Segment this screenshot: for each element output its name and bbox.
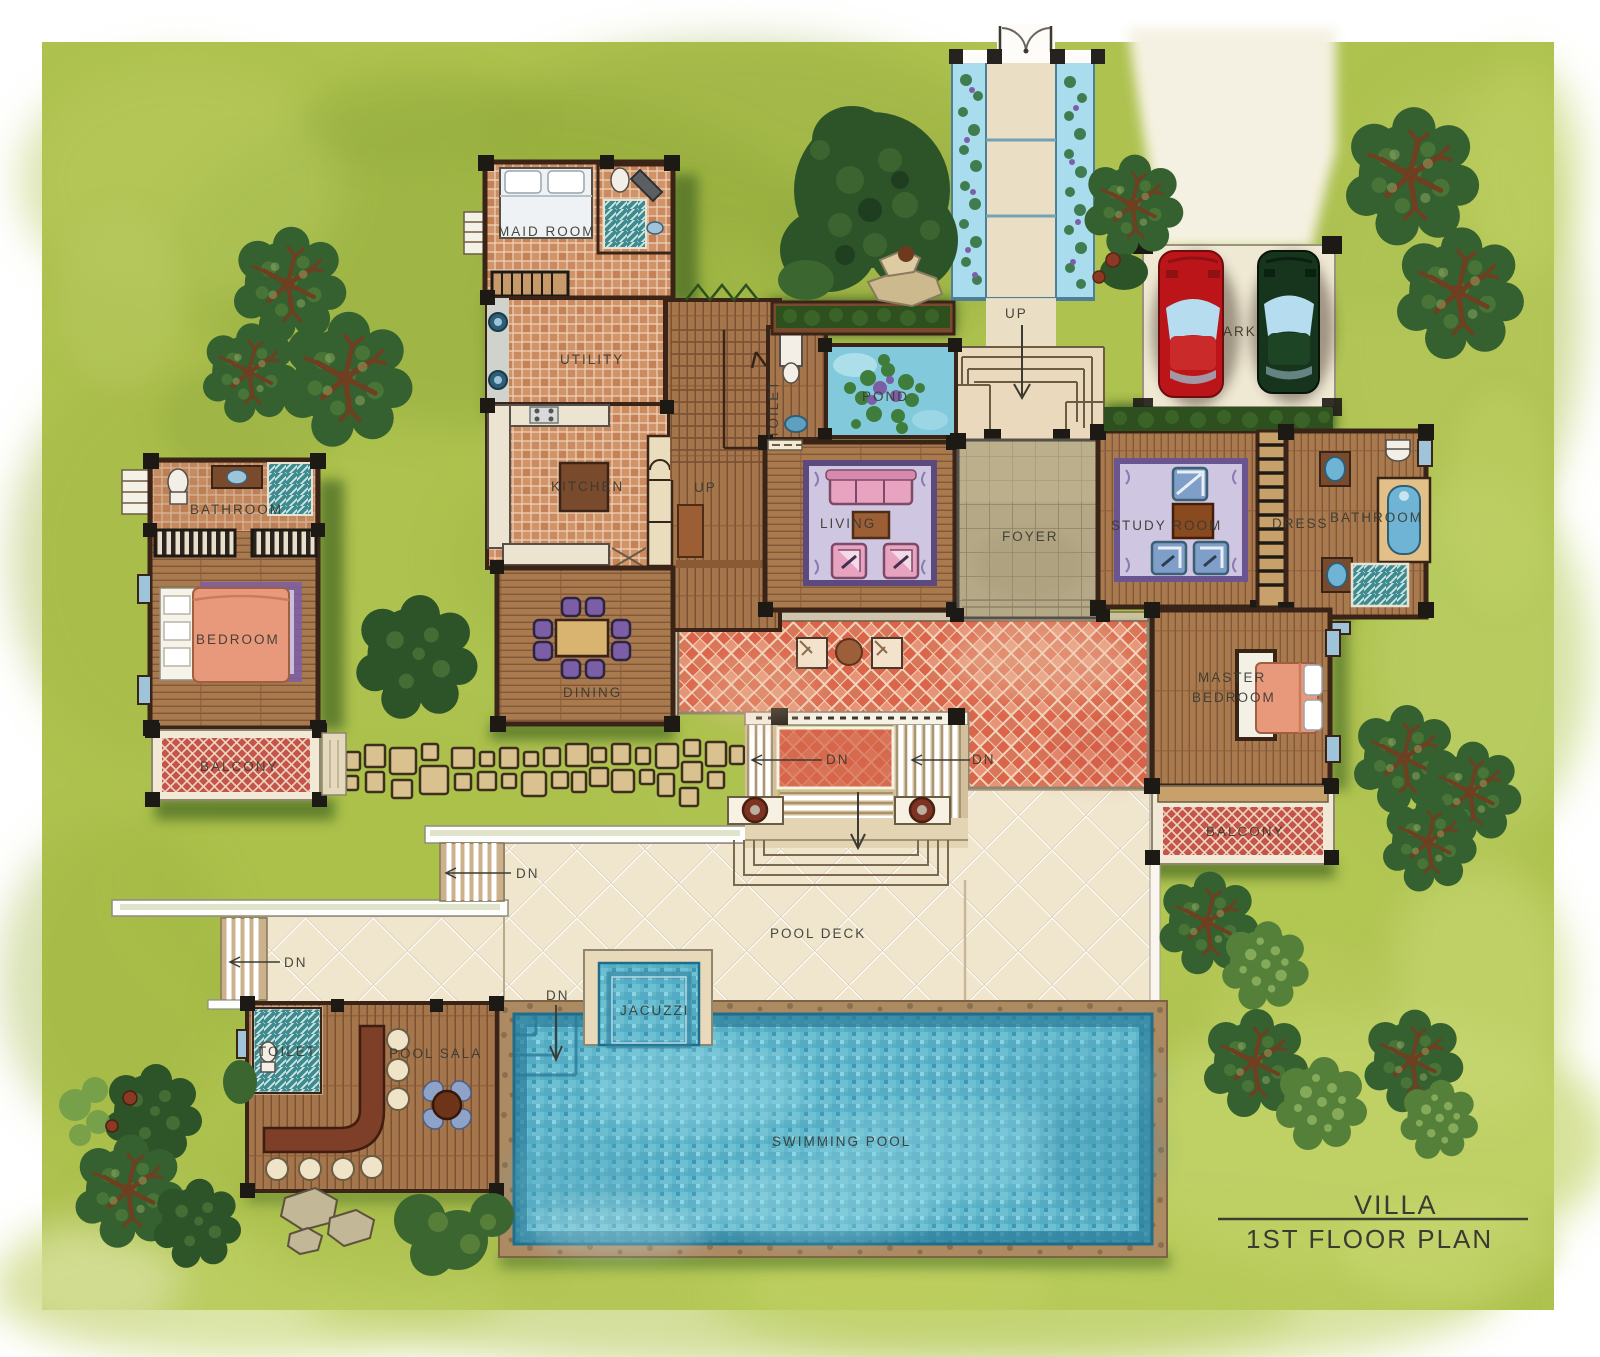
svg-text:JACUZZI: JACUZZI — [620, 1003, 690, 1018]
svg-text:SWIMMING POOL: SWIMMING POOL — [772, 1134, 911, 1149]
svg-text:UTILITY: UTILITY — [560, 352, 624, 367]
svg-text:1ST FLOOR PLAN: 1ST FLOOR PLAN — [1246, 1224, 1493, 1254]
svg-text:BEDROOM: BEDROOM — [1192, 690, 1276, 705]
svg-text:DN: DN — [516, 866, 540, 881]
svg-text:DINING: DINING — [563, 685, 622, 700]
svg-text:MASTER: MASTER — [1198, 670, 1266, 685]
svg-text:TOILET: TOILET — [258, 1044, 317, 1059]
svg-text:LIVING: LIVING — [820, 516, 876, 531]
svg-text:POND: POND — [862, 389, 909, 404]
svg-text:KITCHEN: KITCHEN — [551, 479, 624, 494]
svg-text:MAID ROOM: MAID ROOM — [498, 224, 596, 239]
svg-text:BALCONY: BALCONY — [1206, 824, 1285, 839]
svg-text:DN: DN — [826, 752, 850, 767]
svg-text:DRESS: DRESS — [1272, 516, 1329, 531]
svg-text:BALCONY: BALCONY — [200, 759, 279, 774]
svg-text:POOL DECK: POOL DECK — [770, 926, 866, 941]
svg-text:FOYER: FOYER — [1002, 529, 1059, 544]
svg-text:UP: UP — [694, 480, 717, 495]
svg-text:VILLA: VILLA — [1354, 1190, 1438, 1220]
svg-text:DN: DN — [284, 955, 308, 970]
svg-text:BATHROOM: BATHROOM — [1330, 510, 1423, 525]
svg-text:TOILET: TOILET — [766, 379, 781, 438]
svg-text:STUDY ROOM: STUDY ROOM — [1111, 518, 1222, 533]
svg-text:BATHROOM: BATHROOM — [190, 502, 283, 517]
svg-text:DN: DN — [546, 988, 570, 1003]
svg-text:POOL SALA: POOL SALA — [389, 1046, 482, 1061]
svg-text:UP: UP — [1005, 306, 1028, 321]
svg-text:DN: DN — [972, 752, 996, 767]
svg-text:BEDROOM: BEDROOM — [196, 632, 280, 647]
